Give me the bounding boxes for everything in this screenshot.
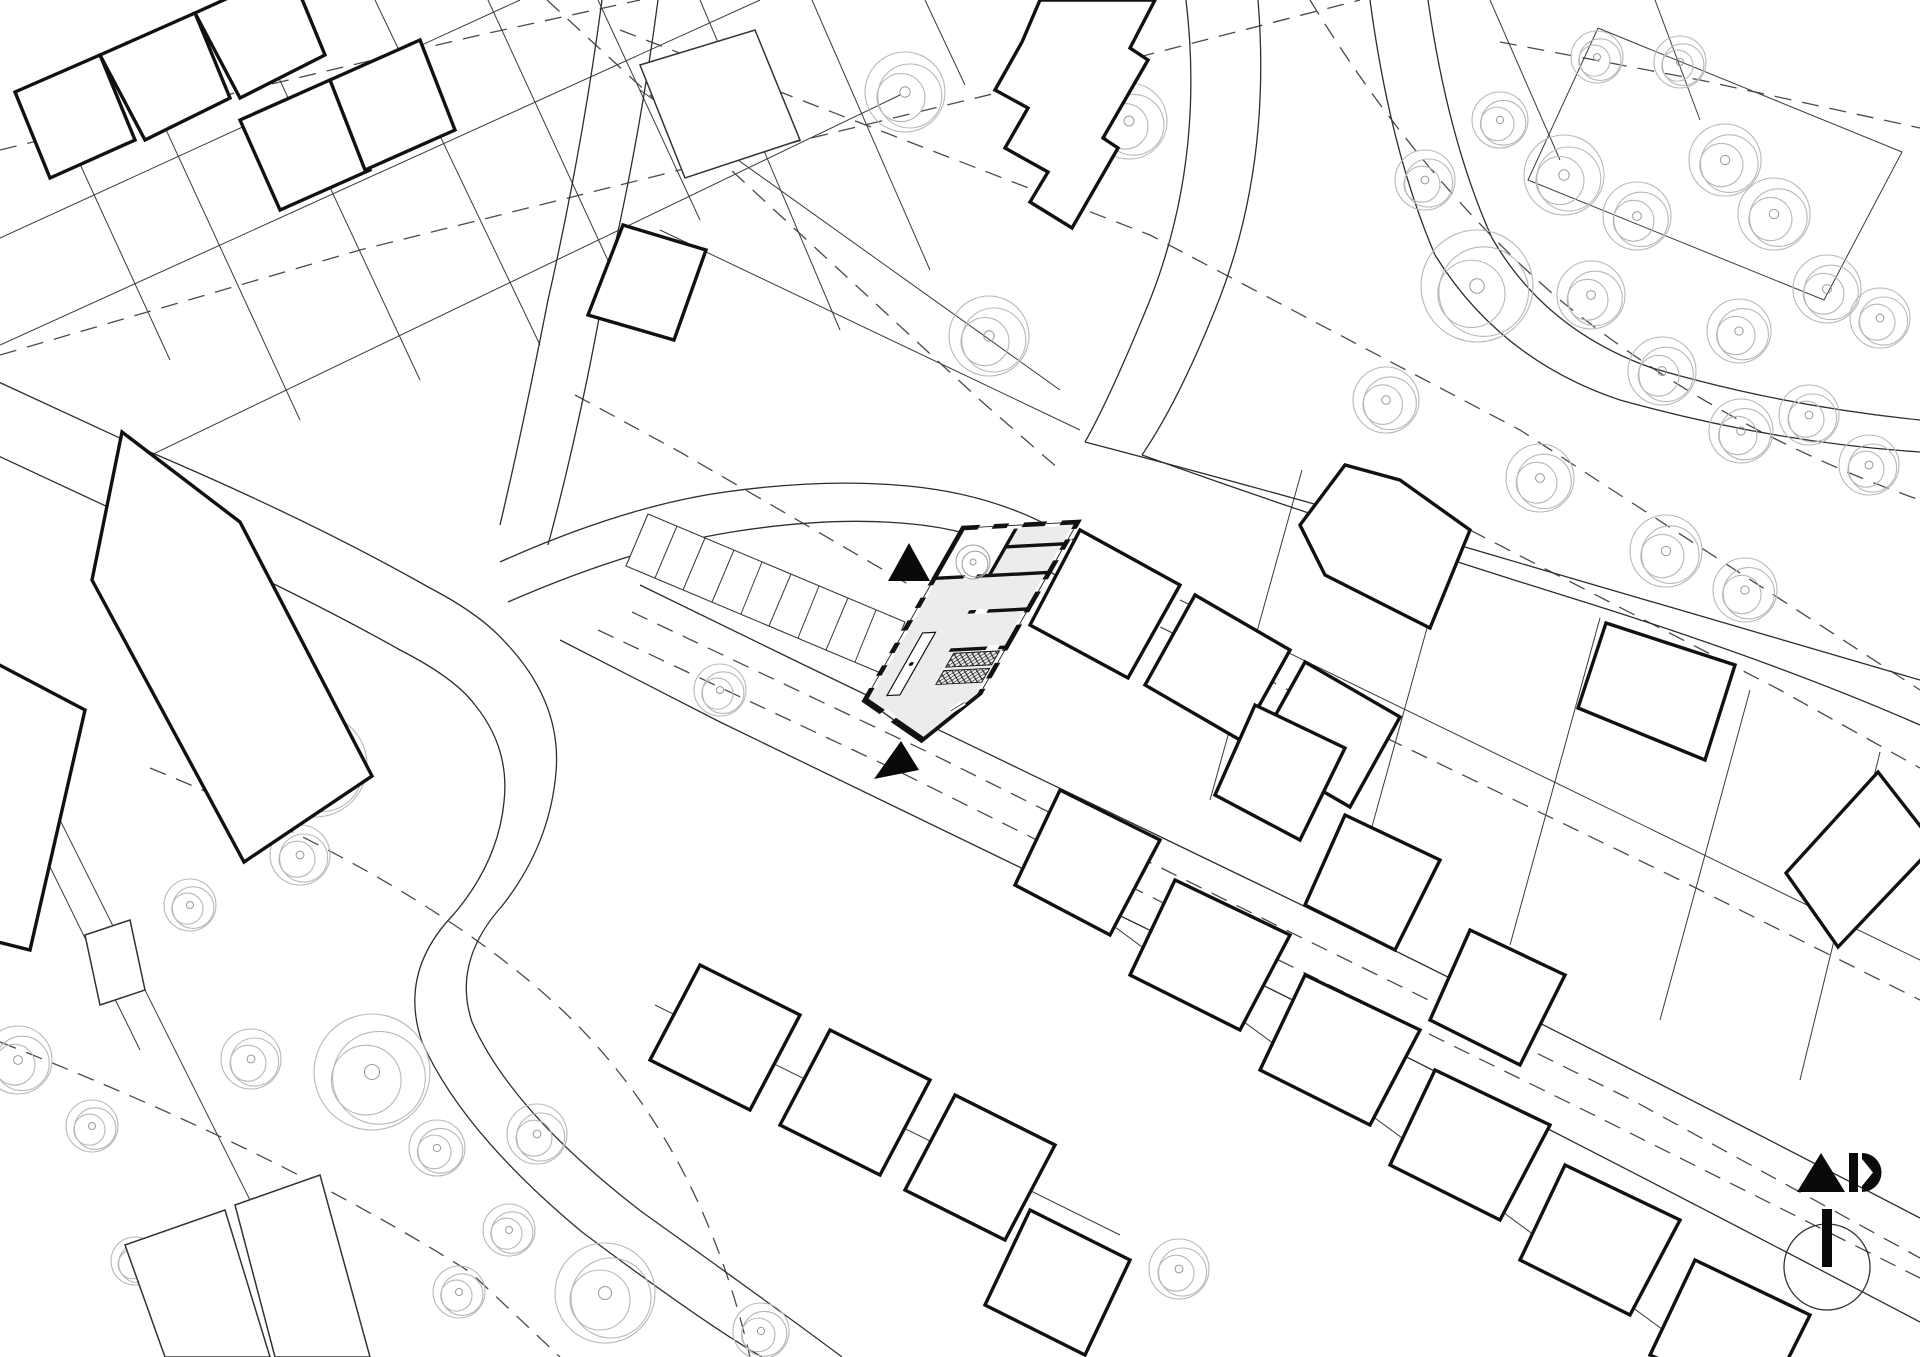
tree <box>433 1266 485 1318</box>
building-outline <box>1390 1070 1550 1220</box>
tree-trunk-circle <box>506 1227 513 1234</box>
tree-canopy-circle <box>571 1258 651 1338</box>
tree-canopy-circle <box>1719 416 1757 454</box>
tree-canopy-circle <box>878 64 942 128</box>
tree-trunk-circle <box>1470 279 1485 294</box>
tree <box>1738 178 1810 250</box>
site-plan-page <box>0 0 1920 1357</box>
tree-canopy-circle <box>1567 279 1608 320</box>
door-opening <box>987 648 999 649</box>
tree <box>1713 558 1777 622</box>
building-outline <box>1300 465 1470 628</box>
tree-canopy-circle <box>702 672 744 714</box>
building-outline <box>1015 790 1160 935</box>
building-outline <box>1260 975 1420 1125</box>
tree <box>1149 1239 1209 1299</box>
tree <box>1709 399 1773 463</box>
tree-canopy-circle <box>74 1108 116 1150</box>
parcel-line <box>1490 0 1560 160</box>
tree-trunk-circle <box>533 1130 541 1138</box>
tree-canopy-circle <box>1537 147 1601 211</box>
tree-canopy-circle <box>1613 200 1654 241</box>
tree-trunk-circle <box>599 1287 612 1300</box>
tree <box>865 52 945 132</box>
tree-trunk-circle <box>900 87 910 97</box>
tree-canopy-circle <box>1158 1255 1194 1291</box>
tree-trunk-circle <box>757 1327 764 1334</box>
tree-canopy-circle <box>1717 309 1768 360</box>
stair-flight <box>936 668 990 684</box>
tree-trunk-circle <box>1536 474 1545 483</box>
tree-trunk-circle <box>1175 1265 1183 1273</box>
building-outline <box>1786 772 1920 947</box>
tree-trunk-circle <box>1876 314 1884 322</box>
tree-trunk-circle <box>247 1055 255 1063</box>
tree-canopy-circle <box>877 74 925 122</box>
tree-canopy-circle <box>516 1120 552 1156</box>
building-outline-light <box>640 30 800 178</box>
tree <box>0 1026 52 1094</box>
tree <box>164 879 216 931</box>
tree <box>1707 299 1771 363</box>
tree-canopy-circle <box>172 893 203 924</box>
tree-trunk-circle <box>1661 546 1670 555</box>
parcel-line <box>1528 28 1902 300</box>
tree <box>1850 288 1910 348</box>
tree <box>1557 261 1625 329</box>
tree-trunk-circle <box>1720 155 1729 164</box>
tree-trunk-circle <box>187 902 194 909</box>
logo-bar-glyph <box>1849 1153 1858 1192</box>
tree-canopy-circle <box>962 308 1026 372</box>
building-outline <box>780 1030 930 1175</box>
tree-canopy-circle <box>1719 409 1770 460</box>
tree-canopy-circle <box>1848 451 1884 487</box>
parking-area <box>626 514 905 674</box>
north-needle <box>1822 1209 1832 1267</box>
tree-canopy-circle <box>1517 454 1571 508</box>
tree <box>483 1204 535 1256</box>
tree-canopy-circle <box>1438 260 1505 327</box>
tree-trunk-circle <box>433 1144 440 1151</box>
tree-canopy-circle <box>1614 192 1668 246</box>
tree <box>949 296 1029 376</box>
tree-canopy-circle <box>441 1280 472 1311</box>
road-edge <box>466 642 842 1357</box>
tree-canopy-circle <box>1662 44 1704 86</box>
tree-canopy-circle <box>1700 143 1743 186</box>
tree-trunk-circle <box>456 1289 463 1296</box>
tree <box>1654 36 1706 88</box>
tree-canopy-circle <box>231 1038 279 1086</box>
tree-canopy-circle <box>1480 107 1514 141</box>
tree <box>1506 444 1574 512</box>
logo-triangle-glyph <box>1797 1153 1845 1192</box>
tree-trunk-circle <box>1769 209 1778 218</box>
tree <box>507 1104 567 1164</box>
tree-canopy-circle <box>741 1318 775 1352</box>
tree-canopy-circle <box>1717 316 1755 354</box>
tree <box>555 1243 655 1343</box>
tree-canopy-circle <box>1662 50 1693 81</box>
logo-halfmoon-glyph <box>1862 1153 1882 1192</box>
stair-flight <box>946 651 1000 667</box>
building-outline <box>1130 880 1290 1030</box>
tree-canopy-circle <box>1859 304 1895 340</box>
tree <box>221 1029 281 1089</box>
tree-trunk-circle <box>1865 461 1873 469</box>
building-outline <box>995 0 1155 228</box>
tree-canopy-circle <box>1159 1248 1207 1296</box>
tree <box>733 1303 789 1357</box>
building-outline <box>1520 1165 1680 1315</box>
entrance-arrow <box>888 543 930 581</box>
tree-canopy-circle <box>1849 444 1897 492</box>
building-outline <box>650 965 800 1110</box>
tree <box>1779 385 1839 445</box>
road-edge <box>1142 0 1261 455</box>
tree-trunk-circle <box>1559 170 1569 180</box>
tree-canopy-circle <box>1749 197 1792 240</box>
building-outline-light <box>85 920 145 1005</box>
tree-trunk-circle <box>364 1064 379 1079</box>
tree-canopy-circle <box>1568 271 1622 325</box>
tree-canopy-circle <box>1642 526 1700 584</box>
tree <box>1571 31 1623 83</box>
tree-canopy-circle <box>1701 135 1759 193</box>
tree-trunk-circle <box>1421 176 1429 184</box>
tree-canopy-circle <box>333 1031 426 1124</box>
building-outline <box>1650 1260 1810 1357</box>
tree-trunk-circle <box>1587 291 1596 300</box>
tree-trunk-circle <box>1805 411 1813 419</box>
tree-canopy-circle <box>1439 247 1529 337</box>
parking-lot-outline <box>626 514 905 674</box>
tree-canopy-circle <box>1639 347 1693 401</box>
tree-canopy-circle <box>1516 462 1557 503</box>
tree-trunk-circle <box>1633 212 1642 221</box>
parcel-line <box>1510 618 1600 945</box>
architectural-site-plan <box>0 0 1920 1357</box>
tree <box>1603 182 1671 250</box>
tree <box>66 1100 118 1152</box>
building-outline <box>0 660 85 950</box>
tree-canopy-circle <box>1579 39 1621 81</box>
building-outline <box>1305 815 1440 950</box>
tree <box>1421 230 1533 342</box>
tree-trunk-circle <box>1496 116 1503 123</box>
tree <box>1395 150 1455 210</box>
tree-canopy-circle <box>1788 401 1824 437</box>
tree-canopy-circle <box>418 1128 463 1173</box>
tree-canopy-circle <box>1723 568 1774 619</box>
tree <box>1472 92 1528 148</box>
tree-trunk-circle <box>1741 586 1749 594</box>
tree-canopy-circle <box>1860 297 1908 345</box>
building-outline <box>1430 930 1565 1065</box>
tree-canopy-circle <box>742 1311 787 1356</box>
dashed-boundary-line <box>1500 42 1920 128</box>
tree-canopy-circle <box>1641 534 1684 577</box>
tree <box>1839 435 1899 495</box>
tree-canopy-circle <box>1364 377 1417 430</box>
tree-canopy-circle <box>331 1045 401 1115</box>
tree-canopy-circle <box>441 1274 483 1316</box>
tree-canopy-circle <box>1750 189 1808 247</box>
tree <box>1630 515 1702 587</box>
tree <box>694 664 746 716</box>
entrance-arrow <box>874 741 919 779</box>
tree-canopy-circle <box>280 834 328 882</box>
tree-canopy-circle <box>570 1270 630 1330</box>
tree-canopy-circle <box>1481 100 1526 145</box>
building-outline <box>92 432 372 862</box>
tree <box>1524 135 1604 215</box>
ak-logo <box>1797 1153 1882 1192</box>
parcel-line <box>660 230 1080 430</box>
tree-canopy-circle <box>172 887 214 929</box>
tree-canopy-circle <box>417 1135 451 1169</box>
tree-canopy-circle <box>491 1212 533 1254</box>
tree-canopy-circle <box>74 1114 105 1145</box>
tree-canopy-circle <box>230 1045 266 1081</box>
tree-canopy-circle <box>491 1218 522 1249</box>
tree-canopy-circle <box>1804 265 1858 319</box>
tree-canopy-circle <box>1723 575 1761 613</box>
north-indicator <box>1784 1209 1870 1310</box>
road-edge <box>1428 0 1920 420</box>
tree-canopy-circle <box>1536 157 1584 205</box>
tree <box>1689 124 1761 196</box>
tree-trunk-circle <box>296 851 304 859</box>
tree-trunk-circle <box>14 1056 23 1065</box>
tree-trunk-circle <box>89 1123 96 1130</box>
door-opening <box>975 611 987 612</box>
tree-trunk-circle <box>717 687 724 694</box>
tree-trunk-circle <box>1594 54 1601 61</box>
parcel-line <box>812 0 930 270</box>
tree-canopy-circle <box>1638 355 1679 396</box>
road-edge <box>1370 0 1920 452</box>
tree-canopy-circle <box>1789 394 1837 442</box>
tree-canopy-circle <box>517 1113 565 1161</box>
tree-canopy-circle <box>279 841 315 877</box>
tree-trunk-circle <box>1735 327 1743 335</box>
tree-canopy-circle <box>702 678 733 709</box>
tree-trunk-circle <box>1124 116 1134 126</box>
tree <box>1353 367 1419 433</box>
tree-trunk-circle <box>1382 396 1391 405</box>
tree <box>409 1120 465 1176</box>
tree <box>314 1014 430 1130</box>
tree-canopy-circle <box>1363 385 1403 425</box>
building-outline <box>588 225 706 340</box>
tree-canopy-circle <box>961 318 1009 366</box>
